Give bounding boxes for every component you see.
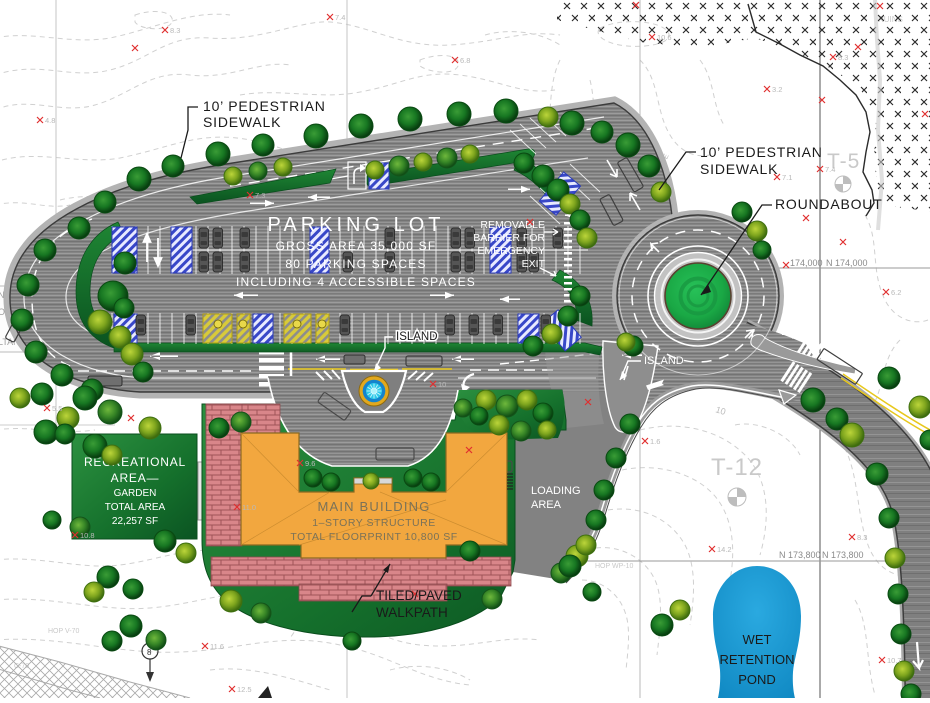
svg-text:9.6: 9.6 — [305, 459, 315, 468]
svg-text:7.3: 7.3 — [255, 191, 265, 200]
svg-text:12.5: 12.5 — [237, 685, 252, 694]
svg-text:6.8: 6.8 — [460, 56, 470, 65]
svg-text:8.3: 8.3 — [857, 533, 867, 542]
svg-text:22,257 SF: 22,257 SF — [112, 516, 158, 527]
svg-text:BARRIER FOR: BARRIER FOR — [473, 232, 545, 244]
svg-text:N 174,000: N 174,000 — [826, 258, 868, 268]
svg-text:5.5: 5.5 — [52, 404, 62, 413]
svg-text:SIDEWALK: SIDEWALK — [203, 114, 281, 130]
svg-text:WET: WET — [743, 632, 772, 647]
svg-text:HOP V-70: HOP V-70 — [48, 628, 79, 635]
svg-text:8.3: 8.3 — [838, 53, 848, 62]
svg-text:N 173,800: N 173,800 — [779, 550, 821, 560]
svg-text:80 PARKING SPACES: 80 PARKING SPACES — [285, 257, 426, 271]
svg-text:1–STORY STRUCTURE: 1–STORY STRUCTURE — [312, 517, 435, 529]
svg-text:AREA—: AREA— — [111, 471, 160, 485]
svg-text:10’ PEDESTRIAN: 10’ PEDESTRIAN — [700, 144, 823, 160]
svg-text:7.4: 7.4 — [335, 13, 345, 22]
svg-text:EMERGENCY: EMERGENCY — [477, 245, 545, 257]
svg-text:ISLAND: ISLAND — [396, 331, 438, 343]
svg-text:7.4: 7.4 — [825, 165, 835, 174]
svg-text:11.6: 11.6 — [210, 642, 224, 651]
svg-text:TOTAL FLOORPRINT 10,800 SF: TOTAL FLOORPRINT 10,800 SF — [290, 531, 457, 543]
svg-text:HOP WP-10: HOP WP-10 — [595, 563, 633, 570]
svg-text:ROUNDABOUT: ROUNDABOUT — [775, 196, 883, 212]
svg-text:MAIN BUILDING: MAIN BUILDING — [317, 499, 430, 514]
svg-text:174,000: 174,000 — [790, 258, 823, 268]
svg-text:11.0: 11.0 — [242, 503, 256, 512]
svg-text:3.2: 3.2 — [772, 85, 782, 94]
svg-text:10.7: 10.7 — [887, 656, 902, 665]
svg-text:INCLUDING 4 ACCESSIBLE SPACES: INCLUDING 4 ACCESSIBLE SPACES — [236, 275, 476, 289]
svg-text:RETENTION: RETENTION — [719, 652, 794, 667]
svg-text:EXIT: EXIT — [522, 258, 546, 270]
svg-text:10.6: 10.6 — [657, 33, 672, 42]
svg-text:10.8: 10.8 — [80, 531, 95, 540]
svg-text:T-12: T-12 — [711, 454, 763, 481]
svg-text:10: 10 — [438, 380, 446, 389]
svg-text:SIDEWALK: SIDEWALK — [700, 161, 778, 177]
svg-text:WALKPATH: WALKPATH — [376, 605, 448, 620]
svg-text:REMOVABLE: REMOVABLE — [480, 219, 545, 231]
svg-text:1.6: 1.6 — [650, 437, 660, 446]
svg-text:POND: POND — [738, 672, 776, 687]
svg-text:4.8: 4.8 — [45, 116, 55, 125]
svg-text:8.3: 8.3 — [170, 26, 180, 35]
svg-text:7.1: 7.1 — [782, 173, 792, 182]
svg-text:TOTAL AREA: TOTAL AREA — [105, 502, 166, 513]
svg-text:GARDEN: GARDEN — [114, 488, 157, 499]
svg-text:GROSS AREA 35,000 SF: GROSS AREA 35,000 SF — [276, 239, 437, 253]
svg-text:N 173,800: N 173,800 — [822, 550, 864, 560]
svg-text:6.2: 6.2 — [891, 288, 901, 297]
svg-text:14.2: 14.2 — [717, 545, 732, 554]
svg-text:AREA: AREA — [531, 499, 562, 511]
svg-text:LOADING: LOADING — [531, 485, 581, 497]
svg-text:PARKING LOT: PARKING LOT — [268, 214, 445, 236]
svg-text:TILED/PAVED: TILED/PAVED — [376, 588, 462, 603]
svg-text:10’ PEDESTRIAN: 10’ PEDESTRIAN — [203, 98, 326, 114]
svg-text:ISLAND: ISLAND — [644, 355, 684, 367]
